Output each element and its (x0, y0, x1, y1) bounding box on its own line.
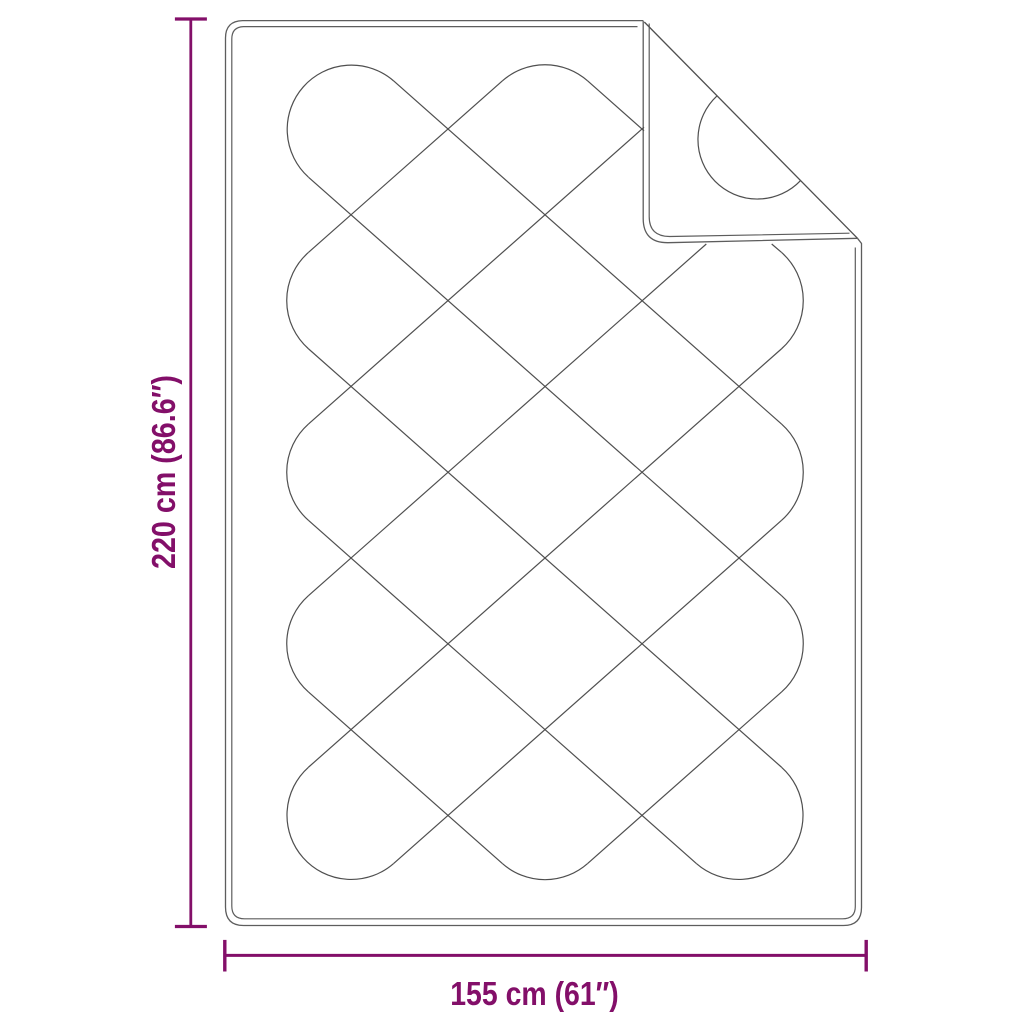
svg-text:155 cm (61″): 155 cm (61″) (450, 976, 619, 1013)
svg-text:220 cm (86.6″): 220 cm (86.6″) (146, 375, 183, 569)
